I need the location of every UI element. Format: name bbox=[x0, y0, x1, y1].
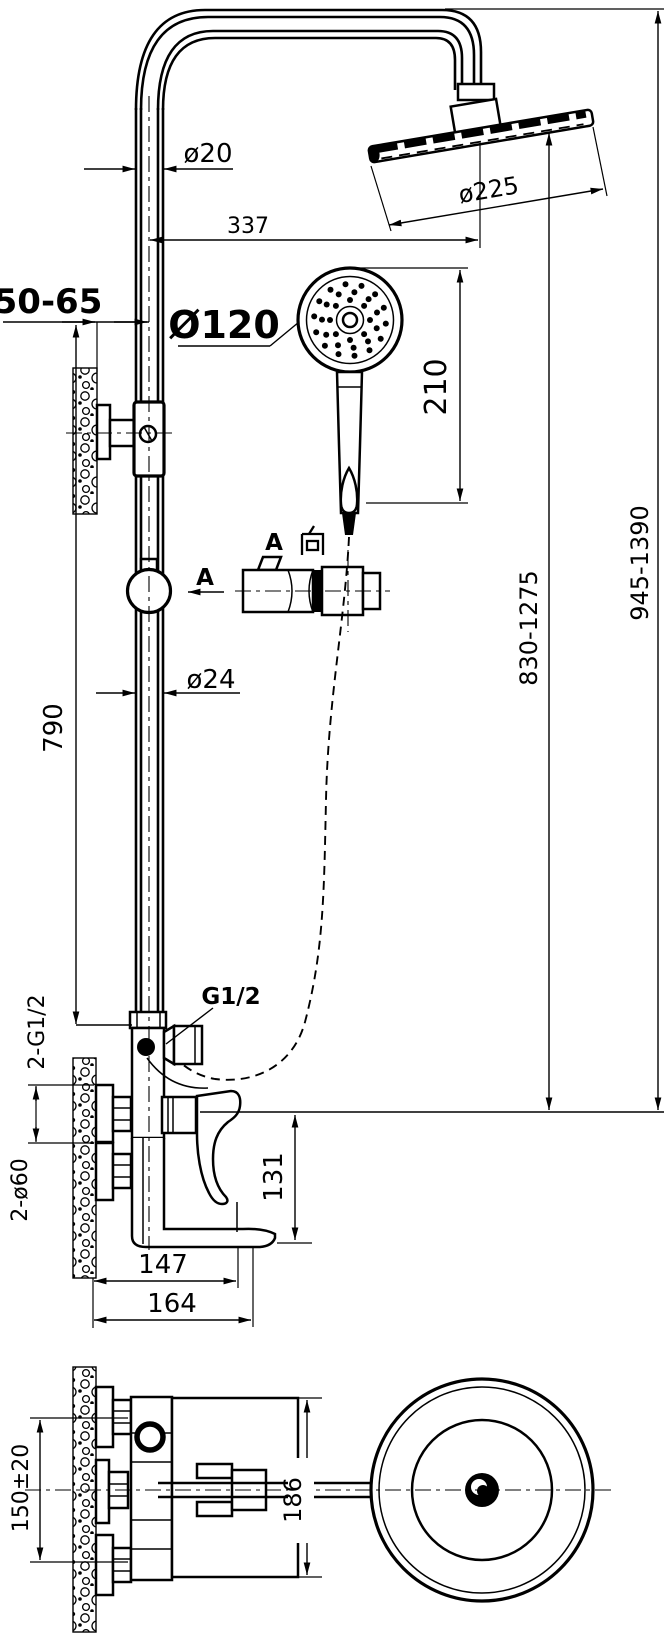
view-a-slider-detail bbox=[235, 550, 390, 632]
label-text-outlet-thread: G1/2 bbox=[201, 984, 260, 1010]
hand-shower bbox=[298, 268, 402, 535]
dim-text-column-height: 790 bbox=[39, 703, 69, 753]
dim-column-dia-24: ø24 bbox=[96, 665, 240, 695]
dim-text-hand-shower-length: 210 bbox=[419, 358, 454, 415]
dim-text-head-height: 830-1275 bbox=[515, 570, 543, 686]
riser-pipe-top-view bbox=[137, 1424, 163, 1450]
dim-overall-height: 945-1390 bbox=[445, 9, 664, 1110]
dim-text-head-dia: ø225 bbox=[457, 171, 521, 209]
dim-text-overall-reach: 164 bbox=[147, 1289, 197, 1319]
mixer-faucet bbox=[130, 1012, 275, 1247]
dim-wall-offset-50-65: 50-65 bbox=[0, 282, 149, 372]
label-view-a: A bbox=[265, 526, 323, 556]
label-text-view-a: A bbox=[265, 530, 283, 556]
shower-set-technical-drawing: ø20 337 ø225 50-65 Ø120 210 A bbox=[0, 0, 666, 1638]
label-hand-shower-dia: Ø120 bbox=[168, 303, 299, 347]
dim-text-body-width: 186 bbox=[279, 1477, 307, 1523]
section-arrow-a: A bbox=[188, 565, 224, 592]
plan-view bbox=[73, 1367, 593, 1632]
label-inlet-threads: 2-G1/2 bbox=[25, 994, 50, 1069]
section-arrow-letter: A bbox=[196, 565, 214, 591]
dim-text-column-dia: ø24 bbox=[187, 665, 236, 695]
dim-text-arm-reach: 337 bbox=[227, 214, 269, 239]
dim-text-overall-height: 945-1390 bbox=[626, 505, 654, 621]
hose-outlet-dot bbox=[137, 1038, 155, 1056]
dim-spout-height-131: 131 bbox=[259, 1115, 312, 1243]
dim-head-height: 830-1275 bbox=[515, 133, 549, 1110]
dim-text-wall-offset: 50-65 bbox=[0, 282, 102, 322]
dim-text-inlet-spacing: 150±20 bbox=[9, 1444, 34, 1532]
cjk-xiang-glyph bbox=[302, 526, 323, 555]
wall-section-lower bbox=[73, 1058, 131, 1278]
drawing-canvas: ø20 337 ø225 50-65 Ø120 210 A bbox=[0, 0, 666, 1638]
dim-text-spout-height: 131 bbox=[259, 1152, 289, 1202]
slide-bar-bracket bbox=[97, 402, 164, 476]
mixer-handle bbox=[197, 1091, 240, 1204]
hand-shower-nozzle-tip bbox=[342, 513, 356, 535]
rain-shower-head bbox=[364, 84, 594, 163]
dim-text-spout-reach: 147 bbox=[138, 1250, 188, 1280]
dim-text-flange-dia: 2-ø60 bbox=[8, 1158, 33, 1221]
label-text-hand-shower-dia: Ø120 bbox=[168, 303, 280, 347]
dim-text-pipe-dia: ø20 bbox=[184, 139, 233, 169]
